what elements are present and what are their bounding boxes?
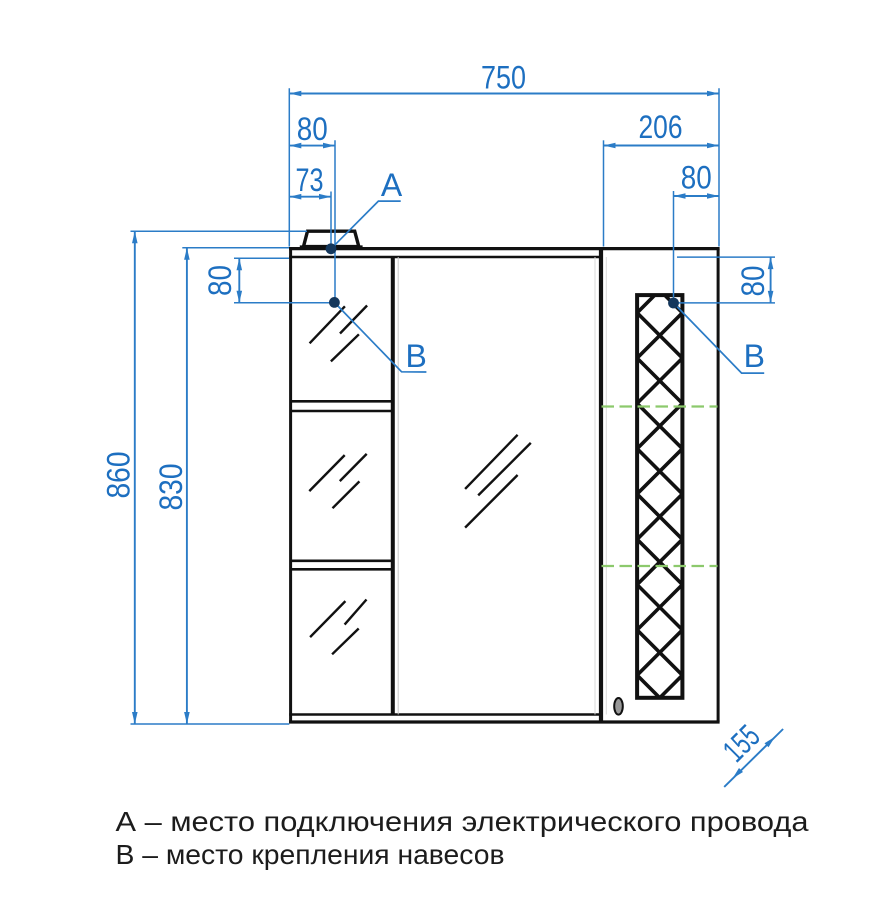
- svg-text:A: A: [381, 167, 403, 203]
- svg-text:860: 860: [101, 452, 137, 499]
- svg-text:830: 830: [153, 464, 189, 511]
- svg-text:206: 206: [639, 109, 683, 145]
- svg-text:80: 80: [297, 111, 328, 147]
- svg-text:B: B: [406, 338, 427, 374]
- svg-text:А – место подключения электрич: А – место подключения электрического про…: [116, 806, 809, 837]
- svg-text:B: B: [744, 338, 765, 374]
- svg-text:750: 750: [481, 60, 526, 96]
- svg-text:80: 80: [681, 159, 712, 195]
- svg-text:80: 80: [202, 265, 238, 296]
- svg-text:73: 73: [296, 162, 324, 198]
- svg-text:В – место крепления навесов: В – место крепления навесов: [116, 839, 505, 870]
- svg-text:80: 80: [735, 266, 771, 297]
